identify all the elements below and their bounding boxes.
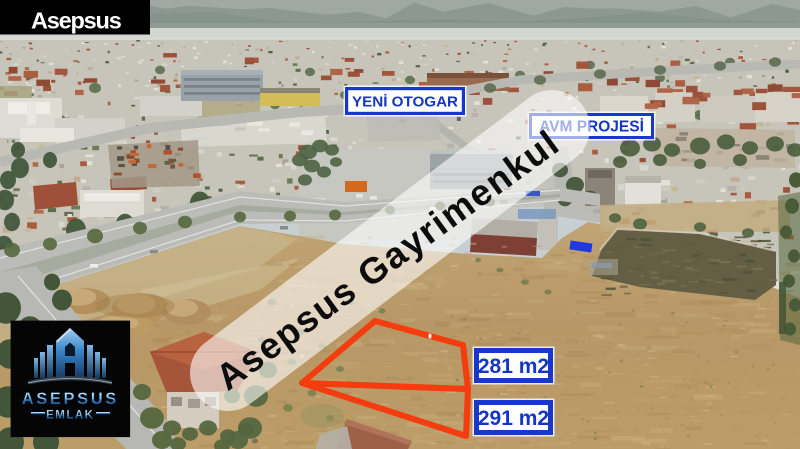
svg-text:ASEPSUS: ASEPSUS bbox=[22, 390, 119, 408]
svg-text:EMLAK: EMLAK bbox=[46, 410, 94, 422]
svg-text:Asepsus: Asepsus bbox=[31, 8, 122, 34]
svg-text:291 m2: 291 m2 bbox=[478, 407, 549, 430]
svg-text:281 m2: 281 m2 bbox=[478, 355, 549, 378]
svg-text:YENİ OTOGAR: YENİ OTOGAR bbox=[352, 93, 458, 110]
